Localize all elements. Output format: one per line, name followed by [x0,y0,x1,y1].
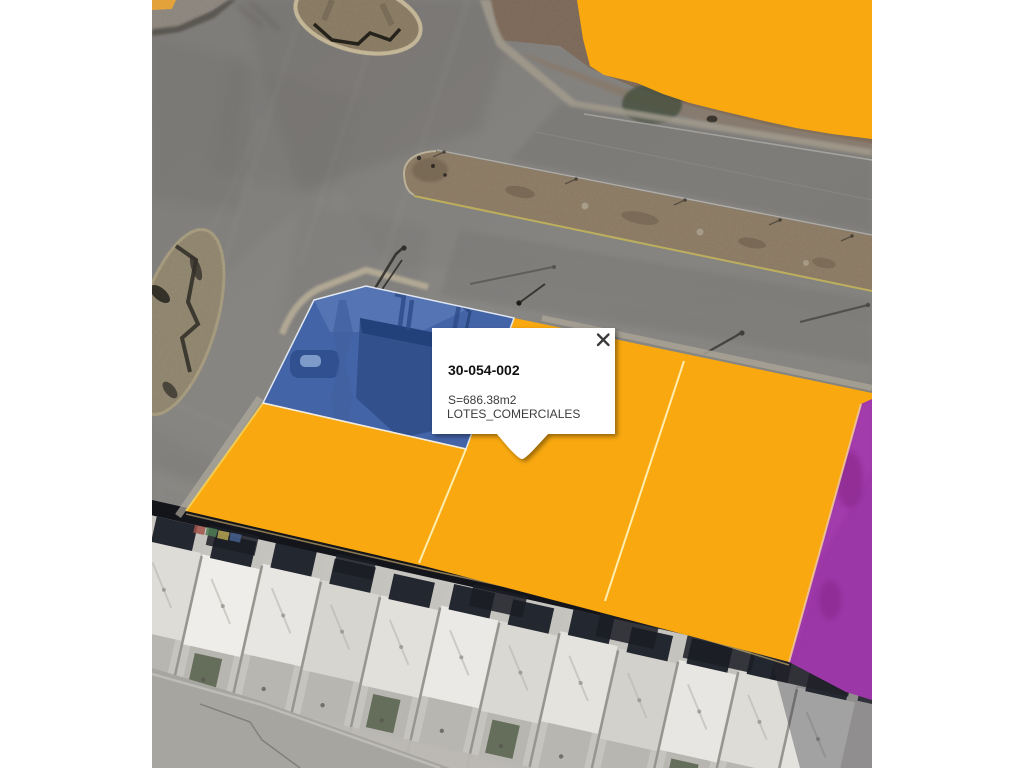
svg-text:LOTES_COMERCIALES: LOTES_COMERCIALES [447,407,580,421]
svg-text:30-054-002: 30-054-002 [448,362,520,378]
svg-text:S=686.38m2: S=686.38m2 [448,393,517,407]
